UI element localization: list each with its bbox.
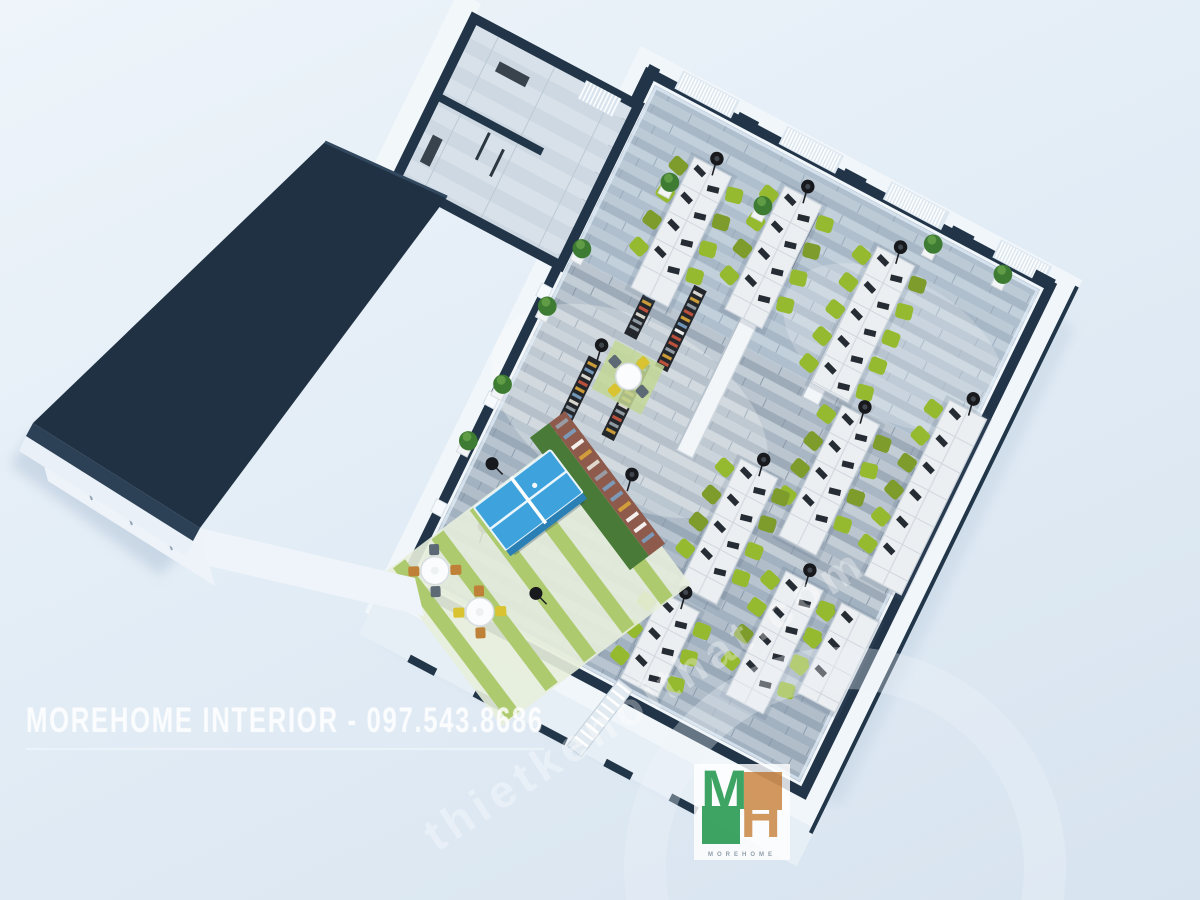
render-stage: MOREHOME INTERIOR - 097.543.8686 thietke… [0,0,1200,900]
watermark-phone-line: MOREHOME INTERIOR - 097.543.8686 [26,700,544,750]
logo-letter-h: H [741,790,781,846]
brand-logo: M H MOREHOME [694,764,790,860]
logo-brand-text: MOREHOME [694,852,790,858]
office-3d-render [0,0,1200,900]
annex-building [19,142,447,616]
